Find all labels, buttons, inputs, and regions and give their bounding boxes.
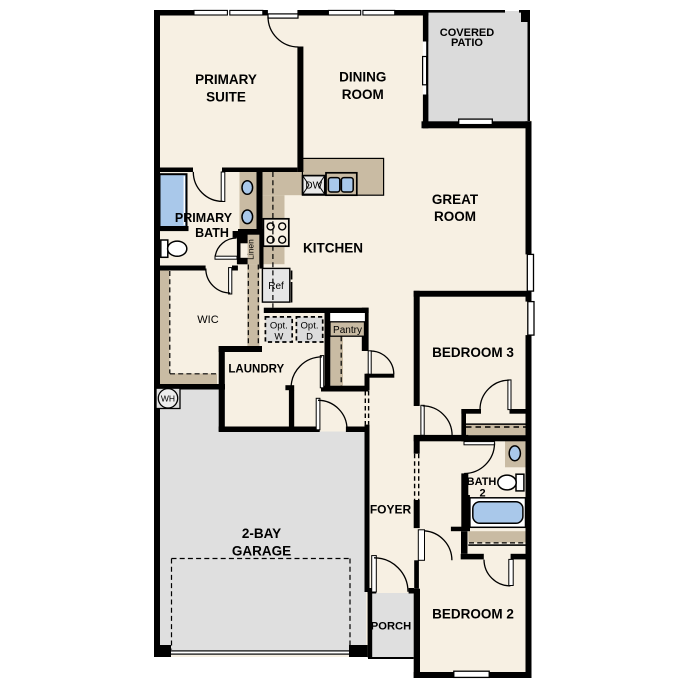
svg-text:BATH: BATH — [195, 226, 229, 240]
svg-text:D: D — [306, 332, 313, 343]
svg-text:WH: WH — [161, 393, 175, 403]
svg-text:BATH: BATH — [467, 476, 497, 488]
svg-text:LAUNDRY: LAUNDRY — [228, 364, 284, 376]
svg-text:FOYER: FOYER — [370, 503, 412, 517]
svg-text:2-BAY: 2-BAY — [242, 526, 281, 541]
svg-text:W: W — [274, 332, 283, 343]
svg-text:Opt.: Opt. — [270, 321, 288, 332]
svg-text:BEDROOM 2: BEDROOM 2 — [432, 607, 514, 622]
svg-text:SUITE: SUITE — [206, 90, 246, 105]
svg-text:WIC: WIC — [197, 314, 218, 326]
svg-text:DW: DW — [305, 181, 322, 192]
svg-text:GREAT: GREAT — [432, 192, 479, 207]
svg-text:GARAGE: GARAGE — [232, 544, 291, 559]
svg-text:PRIMARY: PRIMARY — [175, 211, 233, 225]
svg-text:Pantry: Pantry — [333, 325, 362, 336]
svg-text:KITCHEN: KITCHEN — [303, 241, 363, 256]
svg-text:ROOM: ROOM — [342, 87, 384, 102]
svg-text:2: 2 — [479, 487, 485, 499]
svg-text:PORCH: PORCH — [371, 621, 411, 633]
svg-text:PATIO: PATIO — [451, 37, 483, 49]
svg-text:Opt.: Opt. — [301, 321, 319, 332]
svg-text:Ref: Ref — [268, 281, 284, 292]
svg-text:BEDROOM 3: BEDROOM 3 — [432, 345, 514, 360]
svg-text:ROOM: ROOM — [434, 209, 476, 224]
svg-text:DINING: DINING — [339, 70, 386, 85]
svg-text:Linen: Linen — [246, 239, 256, 260]
svg-text:PRIMARY: PRIMARY — [195, 72, 257, 87]
